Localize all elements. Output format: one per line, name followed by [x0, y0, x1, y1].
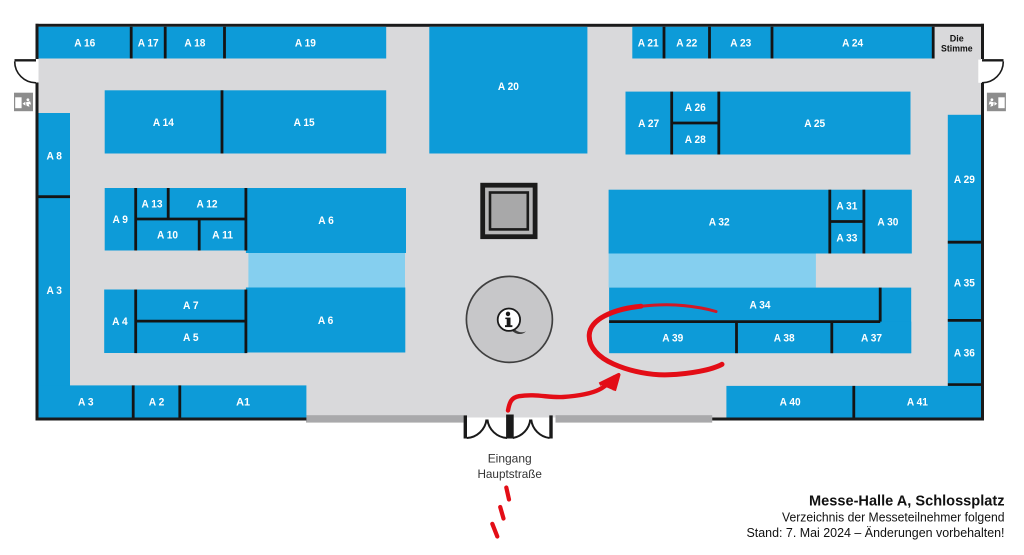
- svg-text:A 37: A 37: [861, 332, 882, 344]
- svg-text:A 9: A 9: [112, 214, 128, 226]
- svg-text:A 40: A 40: [780, 397, 801, 409]
- svg-text:A 39: A 39: [662, 332, 683, 344]
- svg-text:A 5: A 5: [183, 332, 199, 344]
- svg-text:A 15: A 15: [294, 117, 315, 129]
- svg-text:A 12: A 12: [197, 198, 218, 210]
- svg-text:A 3: A 3: [78, 396, 94, 408]
- svg-text:A 8: A 8: [46, 150, 62, 162]
- svg-text:A 11: A 11: [212, 230, 233, 242]
- svg-text:A 18: A 18: [184, 38, 205, 50]
- svg-text:A 10: A 10: [157, 230, 178, 242]
- svg-text:A1: A1: [236, 396, 250, 408]
- svg-text:A 29: A 29: [954, 174, 975, 186]
- svg-text:A 38: A 38: [774, 332, 795, 344]
- svg-text:A 6: A 6: [318, 215, 334, 227]
- svg-text:A 19: A 19: [295, 38, 316, 50]
- svg-text:A 27: A 27: [638, 118, 659, 130]
- svg-text:A 21: A 21: [638, 38, 659, 50]
- svg-text:A 26: A 26: [685, 102, 706, 114]
- svg-text:Messe-Halle A, Schlossplatz: Messe-Halle A, Schlossplatz: [809, 494, 1005, 510]
- svg-text:A 31: A 31: [836, 200, 857, 212]
- svg-text:Die: Die: [950, 34, 964, 44]
- svg-text:Stand: 7. Mai 2024 – Änderunge: Stand: 7. Mai 2024 – Änderungen vorbehal…: [747, 525, 1005, 540]
- svg-text:A 14: A 14: [153, 117, 175, 129]
- svg-text:A 33: A 33: [836, 232, 857, 244]
- svg-text:A 35: A 35: [954, 277, 975, 289]
- svg-text:Eingang: Eingang: [488, 452, 532, 466]
- svg-text:A 16: A 16: [74, 38, 95, 50]
- svg-text:Stimme: Stimme: [941, 44, 973, 54]
- svg-text:A 20: A 20: [498, 81, 519, 93]
- svg-text:Verzeichnis der Messeteilnehme: Verzeichnis der Messeteilnehmer folgend: [782, 510, 1005, 525]
- svg-text:A 36: A 36: [954, 347, 975, 359]
- svg-text:A 23: A 23: [730, 38, 751, 50]
- svg-text:A 25: A 25: [804, 118, 825, 130]
- svg-text:A 13: A 13: [142, 198, 163, 210]
- svg-text:A 7: A 7: [183, 300, 199, 312]
- svg-text:A 4: A 4: [112, 316, 128, 328]
- svg-text:A 28: A 28: [685, 134, 706, 146]
- svg-text:A 3: A 3: [46, 285, 62, 297]
- svg-text:A 30: A 30: [877, 216, 898, 228]
- svg-text:Hauptstraße: Hauptstraße: [477, 467, 542, 481]
- svg-text:A 32: A 32: [709, 216, 730, 228]
- svg-text:A 41: A 41: [907, 397, 928, 409]
- svg-text:A 22: A 22: [676, 38, 697, 50]
- svg-text:A 24: A 24: [842, 38, 864, 50]
- svg-text:A 17: A 17: [138, 38, 159, 50]
- svg-text:A 34: A 34: [750, 299, 772, 311]
- svg-text:A 6: A 6: [318, 315, 334, 327]
- svg-text:A 2: A 2: [149, 396, 165, 408]
